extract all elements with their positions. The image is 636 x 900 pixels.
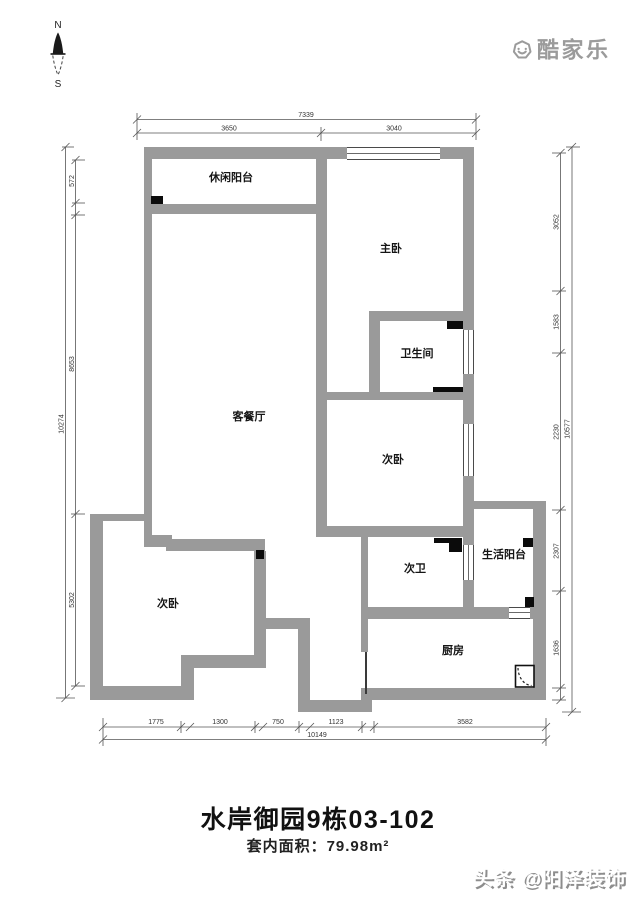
svg-text:2307: 2307 — [554, 543, 561, 559]
svg-text:8653: 8653 — [69, 356, 76, 372]
svg-text:3040: 3040 — [386, 126, 402, 133]
svg-text:7339: 7339 — [298, 112, 314, 119]
svg-text:10274: 10274 — [59, 414, 66, 434]
svg-text:5302: 5302 — [69, 592, 76, 608]
svg-text:2230: 2230 — [554, 424, 561, 440]
svg-text:1123: 1123 — [328, 719, 343, 726]
svg-text:750: 750 — [272, 719, 284, 726]
svg-text:1583: 1583 — [554, 314, 561, 330]
svg-text:1775: 1775 — [148, 719, 164, 726]
svg-text:S: S — [55, 79, 62, 90]
svg-text:1636: 1636 — [554, 640, 561, 656]
svg-text:10577: 10577 — [565, 419, 572, 439]
svg-text:10149: 10149 — [307, 732, 327, 739]
svg-text:1300: 1300 — [212, 719, 228, 726]
svg-text:572: 572 — [69, 175, 76, 187]
svg-text:3052: 3052 — [554, 214, 561, 230]
svg-text:N: N — [54, 20, 61, 31]
svg-text:酷家乐: 酷家乐 — [537, 38, 611, 63]
svg-text:3650: 3650 — [221, 126, 237, 133]
svg-text:3582: 3582 — [457, 719, 473, 726]
